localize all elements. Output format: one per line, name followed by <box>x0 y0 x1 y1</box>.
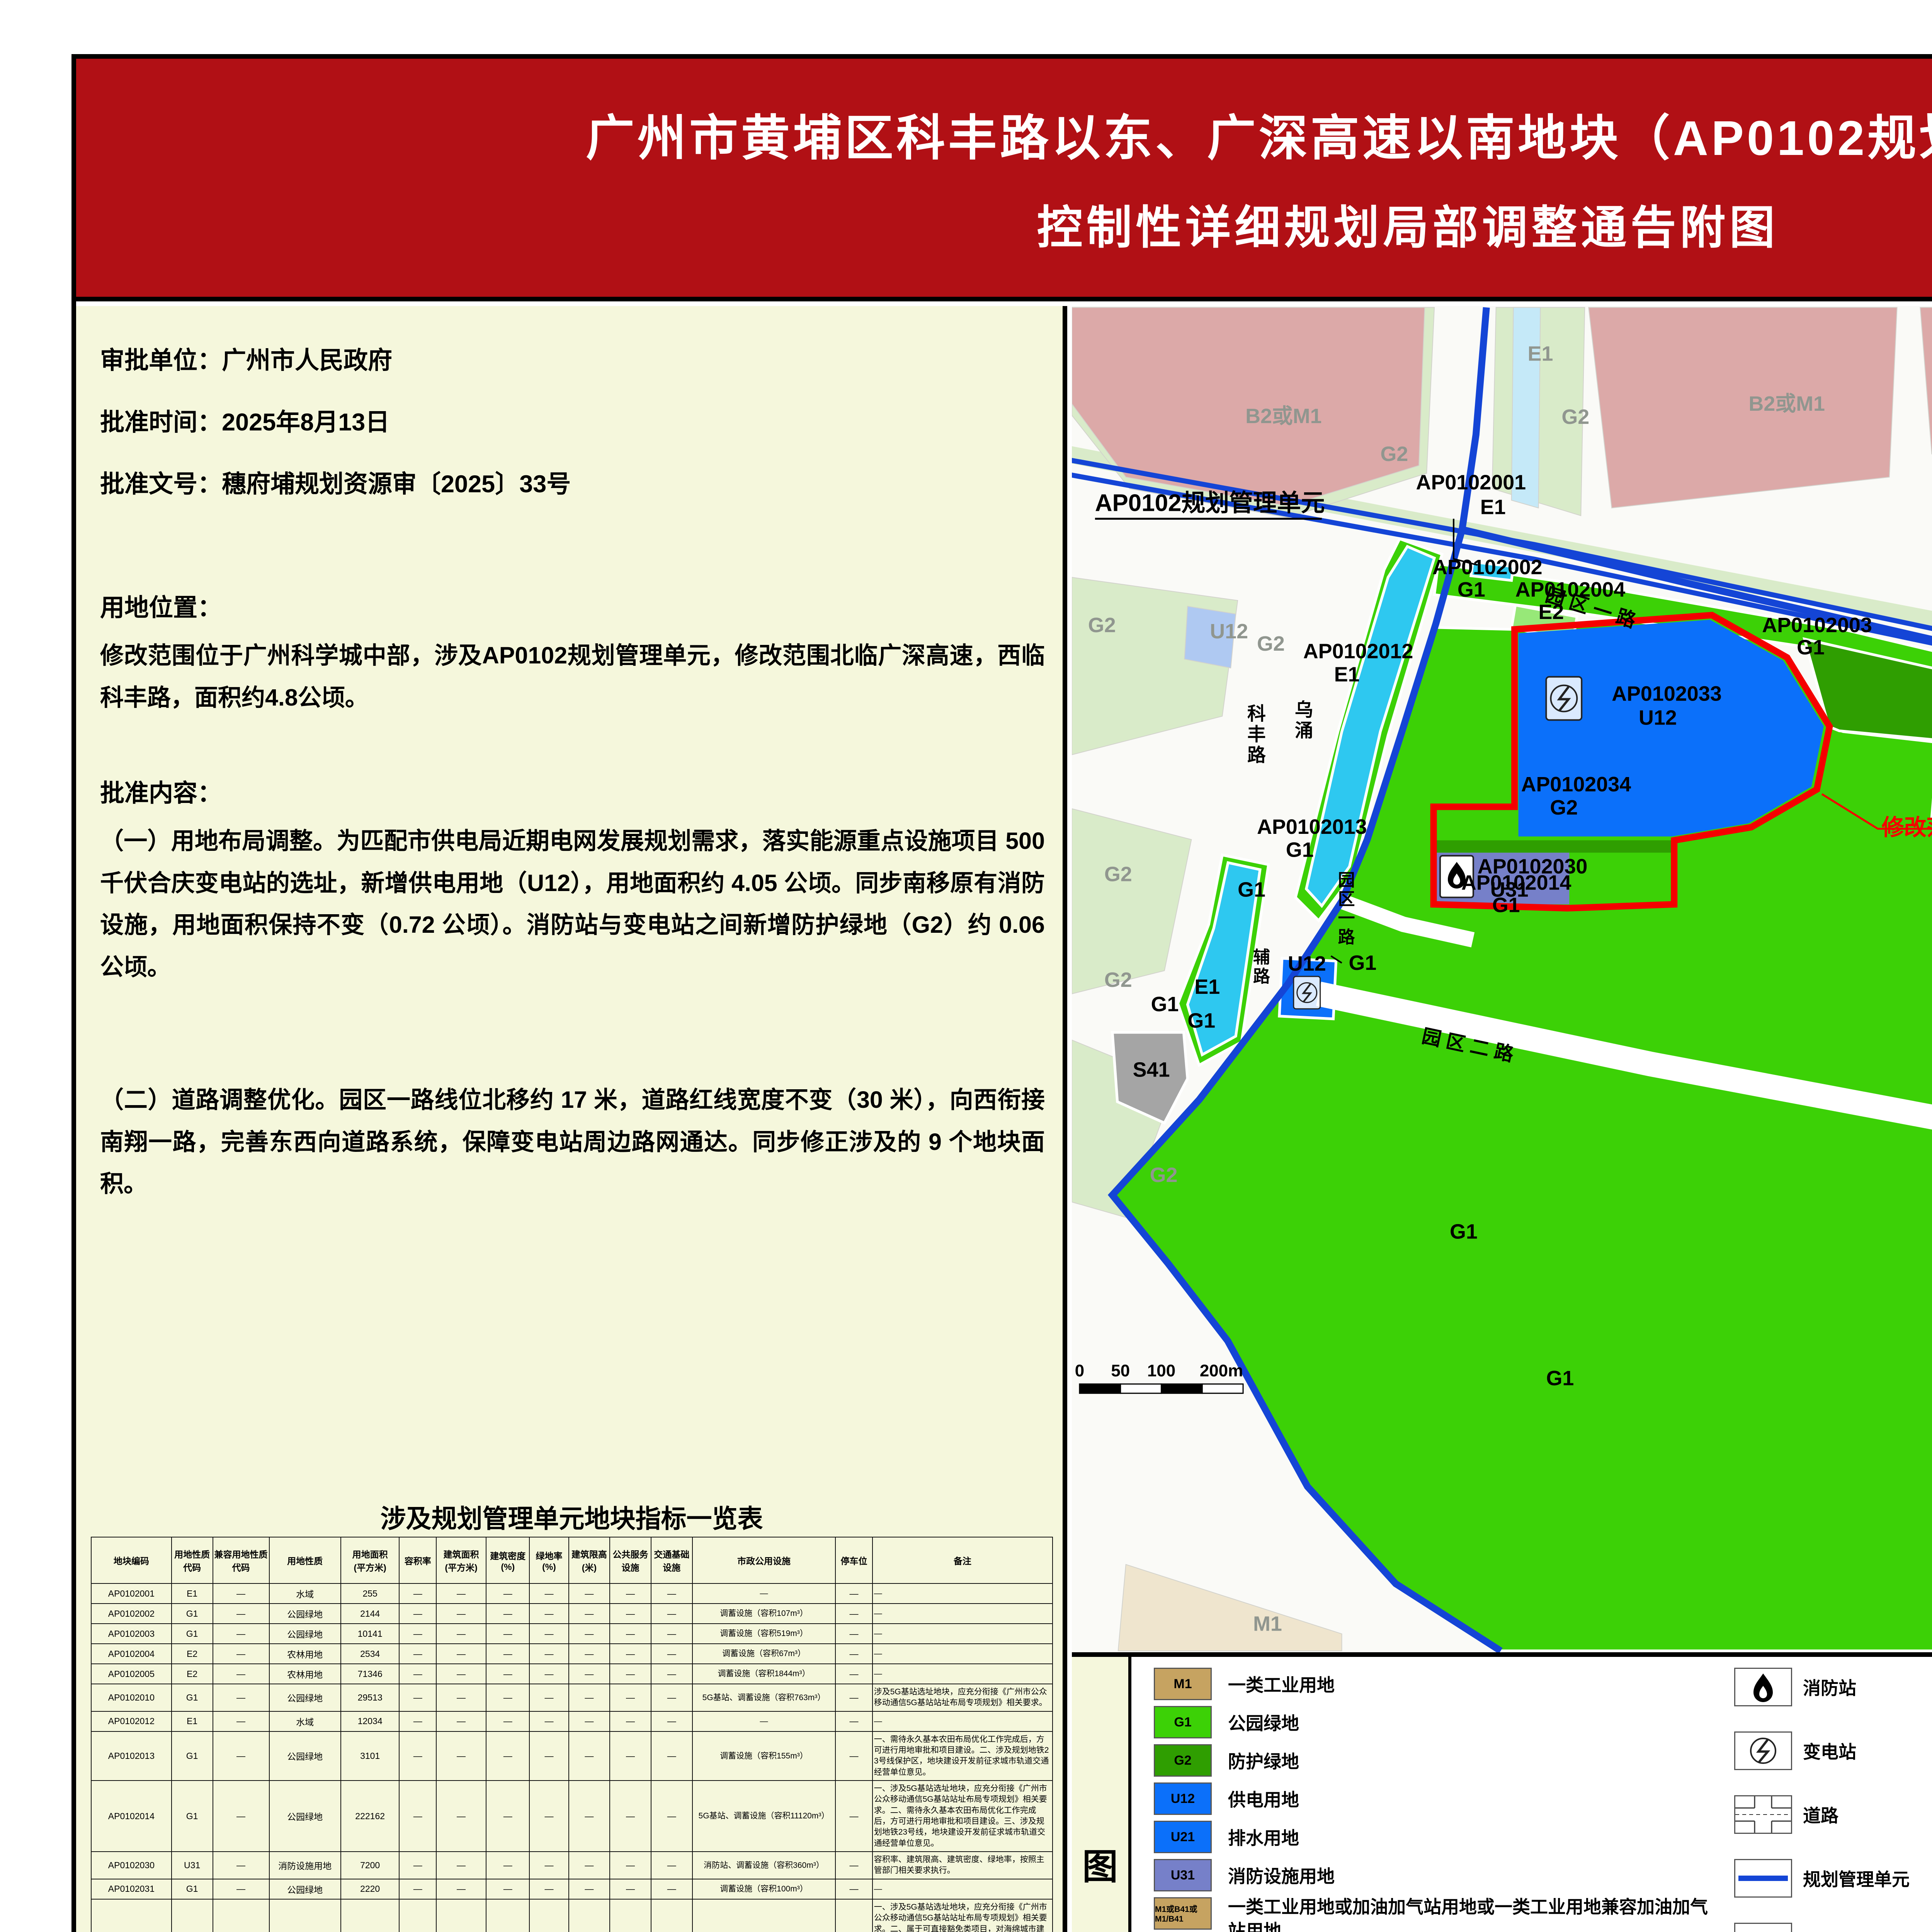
divider <box>1128 1657 1131 1932</box>
table-header: 停车位 <box>835 1537 872 1583</box>
map-label: G2 <box>1150 1163 1178 1187</box>
table-row: AP0102031G1—公园绿地2220———————调蓄设施（容积100m³）… <box>91 1879 1053 1899</box>
legend-swatch-M1或B41或M1/B41: M1或B41或M1/B41 <box>1154 1897 1212 1930</box>
map-label: AP0102规划管理单元 <box>1095 490 1325 517</box>
map-label: 园区一路 <box>1338 871 1355 947</box>
map-label: G2 <box>1380 442 1408 466</box>
table-header: 地块编码 <box>91 1537 172 1583</box>
map-label: AP0102002 <box>1432 556 1543 579</box>
legend-label: 一类工业用地 <box>1228 1673 1723 1697</box>
table-header: 备注 <box>872 1537 1053 1583</box>
legend-strip-title: 图例 <box>1072 1657 1128 1932</box>
location-title: 用地位置： <box>100 588 222 623</box>
map-label: G2 <box>1257 632 1285 655</box>
map-label: AP0102013 <box>1257 815 1367 838</box>
table-row: AP0102005E2—农林用地71346———————调蓄设施（容积1844m… <box>91 1664 1053 1684</box>
map-label: AP0102034 <box>1521 773 1631 796</box>
table-header: 建筑密度 (%) <box>486 1537 529 1583</box>
table-row: AP0102001E1—水域255—————————— <box>91 1583 1053 1604</box>
legend-swatch-U12: U12 <box>1154 1782 1212 1815</box>
location-body: 修改范围位于广州科学城中部，涉及AP0102规划管理单元，修改范围北临广深高速，… <box>100 634 1045 718</box>
legend-label: 消防设施用地 <box>1228 1864 1723 1888</box>
map-label: G1 <box>1286 838 1314 862</box>
map-label: G1 <box>1797 636 1825 659</box>
legend-swatch-U31: U31 <box>1154 1859 1212 1891</box>
main-plan-map: 050100200m B2或M1G2E1G2B2或M1B2G1M1或B2/B1M… <box>1072 306 1932 1652</box>
map-label: AP0102033 <box>1612 682 1722 705</box>
legend-swatch-G1: G1 <box>1154 1706 1212 1738</box>
map-label: 辅路 <box>1253 948 1270 986</box>
map-label: U12 <box>1288 952 1326 975</box>
table-header: 绿地率 (%) <box>529 1537 568 1583</box>
plan-map-canvas: 050100200m B2或M1G2E1G2B2或M1B2G1M1或B2/B1M… <box>1072 306 1932 1652</box>
map-label: AP0102003 <box>1762 614 1872 637</box>
substation-icon <box>1734 1731 1792 1770</box>
map-label: S41 <box>1133 1058 1170 1081</box>
fire-station-icon <box>1734 1668 1792 1706</box>
table-header: 用地面积 (平方米) <box>341 1537 400 1583</box>
map-label: M1 <box>1253 1612 1282 1635</box>
map-label: U12 <box>1210 620 1248 643</box>
map-label: G1 <box>1458 578 1485 601</box>
table-row: AP0102002G1—公园绿地2144———————调蓄设施（容积107m³）… <box>91 1604 1053 1624</box>
map-label: G1 <box>1187 1009 1215 1032</box>
substation-icon <box>1294 976 1320 1009</box>
map-label: AP0102014 <box>1461 871 1571 894</box>
approval-date: 批准时间：2025年8月13日 <box>100 403 389 438</box>
legend-label: 防护绿地 <box>1228 1750 1723 1774</box>
legend-label: 供电用地 <box>1228 1788 1723 1812</box>
plots-index-table: 地块编码用地性质 代码兼容用地性质 代码用地性质用地面积 (平方米)容积率建筑面… <box>91 1537 1053 1932</box>
content-paragraph-2: （二）道路调整优化。园区一路线位北移约 17 米，道路红线宽度不变（30 米），… <box>100 1079 1045 1205</box>
table-row: AP0102033U12—供电用地40457———————5G基站、500kV变… <box>91 1899 1053 1932</box>
map-label: 修改范围 <box>1882 815 1932 840</box>
table-header: 建筑限高 (米) <box>569 1537 610 1583</box>
table-row: AP0102010G1—公园绿地29513———————5G基站、调蓄设施（容积… <box>91 1684 1053 1711</box>
scale-labels: 050100200m <box>1075 1361 1243 1380</box>
strip-char: 图 <box>1082 1838 1118 1889</box>
scale-label: 0 <box>1075 1361 1084 1380</box>
map-label: G1 <box>1492 893 1520 917</box>
legend-swatch-G2: G2 <box>1154 1744 1212 1777</box>
map-label: AP0102012 <box>1303 640 1413 663</box>
scale-label: 100 <box>1147 1361 1175 1380</box>
legend-label: 一类工业用地或加油加气站用地或一类工业用地兼容加油加气站用地 <box>1228 1895 1723 1932</box>
table-header: 容积率 <box>399 1537 436 1583</box>
scale-bar <box>1080 1384 1243 1393</box>
table-row: AP0102030U31—消防设施用地7200———————消防站、调蓄设施（容… <box>91 1852 1053 1879</box>
table-row: AP0102012E1—水域12034—————————— <box>91 1711 1053 1731</box>
map-label: AP0102001 <box>1416 471 1526 494</box>
title-banner: 广州市黄埔区科丰路以东、广深高速以南地块（AP0102规划管理单元） 控制性详细… <box>76 59 1932 301</box>
table-row: AP0102004E2—农林用地2534———————调蓄设施（容积67m³）—… <box>91 1644 1053 1664</box>
map-label: E1 <box>1480 496 1506 519</box>
table-header: 用地性质 代码 <box>172 1537 213 1583</box>
info-panel: 审批单位：广州市人民政府 批准时间：2025年8月13日 批准文号：穗府埔规划资… <box>76 306 1067 1932</box>
table-header: 市政公用设施 <box>692 1537 836 1583</box>
legend-symbol-label: 消防站 <box>1803 1676 1932 1700</box>
page-title-line1: 广州市黄埔区科丰路以东、广深高速以南地块（AP0102规划管理单元） <box>586 99 1932 169</box>
unit-boundary-icon <box>1734 1859 1792 1898</box>
table-header: 交通基础 设施 <box>651 1537 692 1583</box>
map-label: E1 <box>1194 975 1220 998</box>
map-label: G2 <box>1104 863 1132 886</box>
content-title: 批准内容： <box>100 774 222 809</box>
table-header: 公共服务 设施 <box>610 1537 651 1583</box>
legend-swatch-M1: M1 <box>1154 1668 1212 1700</box>
legend-label: 排水用地 <box>1228 1826 1723 1850</box>
map-label: B2或M1 <box>1245 405 1322 428</box>
scale-label: 50 <box>1111 1361 1130 1380</box>
page-title-line2: 控制性详细规划局部调整通告附图 <box>1037 190 1779 257</box>
map-label: G2 <box>1550 796 1578 819</box>
map-label: E1 <box>1334 663 1360 686</box>
map-label: E1 <box>1528 342 1553 365</box>
map-label: B2或M1 <box>1748 392 1825 415</box>
road-icon <box>1734 1795 1792 1834</box>
legend-symbol-label: 规划管理单元 <box>1803 1867 1932 1891</box>
substation-icon <box>1546 677 1582 720</box>
legend-label: 公园绿地 <box>1228 1711 1723 1735</box>
content-paragraph-1: （一）用地布局调整。为匹配市供电局近期电网发展规划需求，落实能源重点设施项目 5… <box>100 820 1045 988</box>
legend-symbol-label: 变电站 <box>1803 1740 1932 1764</box>
map-label: G1 <box>1349 951 1377 975</box>
map-label: U12 <box>1639 706 1677 729</box>
modify-scope-icon <box>1734 1923 1792 1932</box>
scale-label: 200m <box>1200 1361 1243 1380</box>
table-title: 涉及规划管理单元地块指标一览表 <box>76 1498 1067 1535</box>
map-label: 乌涌 <box>1295 700 1313 741</box>
legend-symbol-label: 道路 <box>1803 1804 1932 1828</box>
table-header: 兼容用地性质 代码 <box>213 1537 269 1583</box>
table-row: AP0102014G1—公园绿地222162———————5G基站、调蓄设施（容… <box>91 1781 1053 1852</box>
map-label: G2 <box>1088 614 1116 637</box>
table-header: 建筑面积 (平方米) <box>436 1537 486 1583</box>
map-label: G2 <box>1104 968 1132 992</box>
notice-sheet: 广州市黄埔区科丰路以东、广深高速以南地块（AP0102规划管理单元） 控制性详细… <box>71 54 1932 1932</box>
map-label: G1 <box>1151 993 1179 1016</box>
map-label: G2 <box>1561 405 1589 429</box>
table-header: 用地性质 <box>269 1537 341 1583</box>
map-label: 科丰路 <box>1247 704 1266 765</box>
bottom-band: 图例 M1一类工业用地G1公园绿地G2防护绿地U12供电用地U21排水用地U31… <box>1072 1652 1932 1932</box>
legend-swatch-U21: U21 <box>1154 1821 1212 1853</box>
legend: M1一类工业用地G1公园绿地G2防护绿地U12供电用地U21排水用地U31消防设… <box>1131 1657 1932 1932</box>
approval-doc: 批准文号：穗府埔规划资源审〔2025〕33号 <box>100 464 571 500</box>
map-label: G1 <box>1450 1220 1478 1243</box>
approval-unit: 审批单位：广州市人民政府 <box>100 341 392 376</box>
map-label: G1 <box>1546 1367 1574 1390</box>
table-row: AP0102013G1—公园绿地3101———————调蓄设施（容积155m³）… <box>91 1731 1053 1781</box>
map-label: G1 <box>1238 878 1265 901</box>
table-row: AP0102003G1—公园绿地10141———————调蓄设施（容积519m³… <box>91 1624 1053 1644</box>
